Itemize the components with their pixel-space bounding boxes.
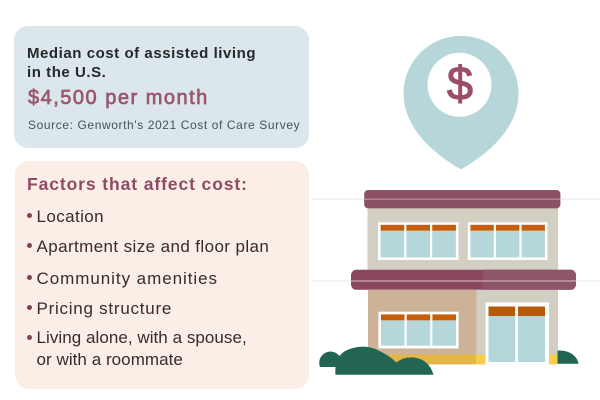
svg-text:$: $ [447, 56, 473, 109]
